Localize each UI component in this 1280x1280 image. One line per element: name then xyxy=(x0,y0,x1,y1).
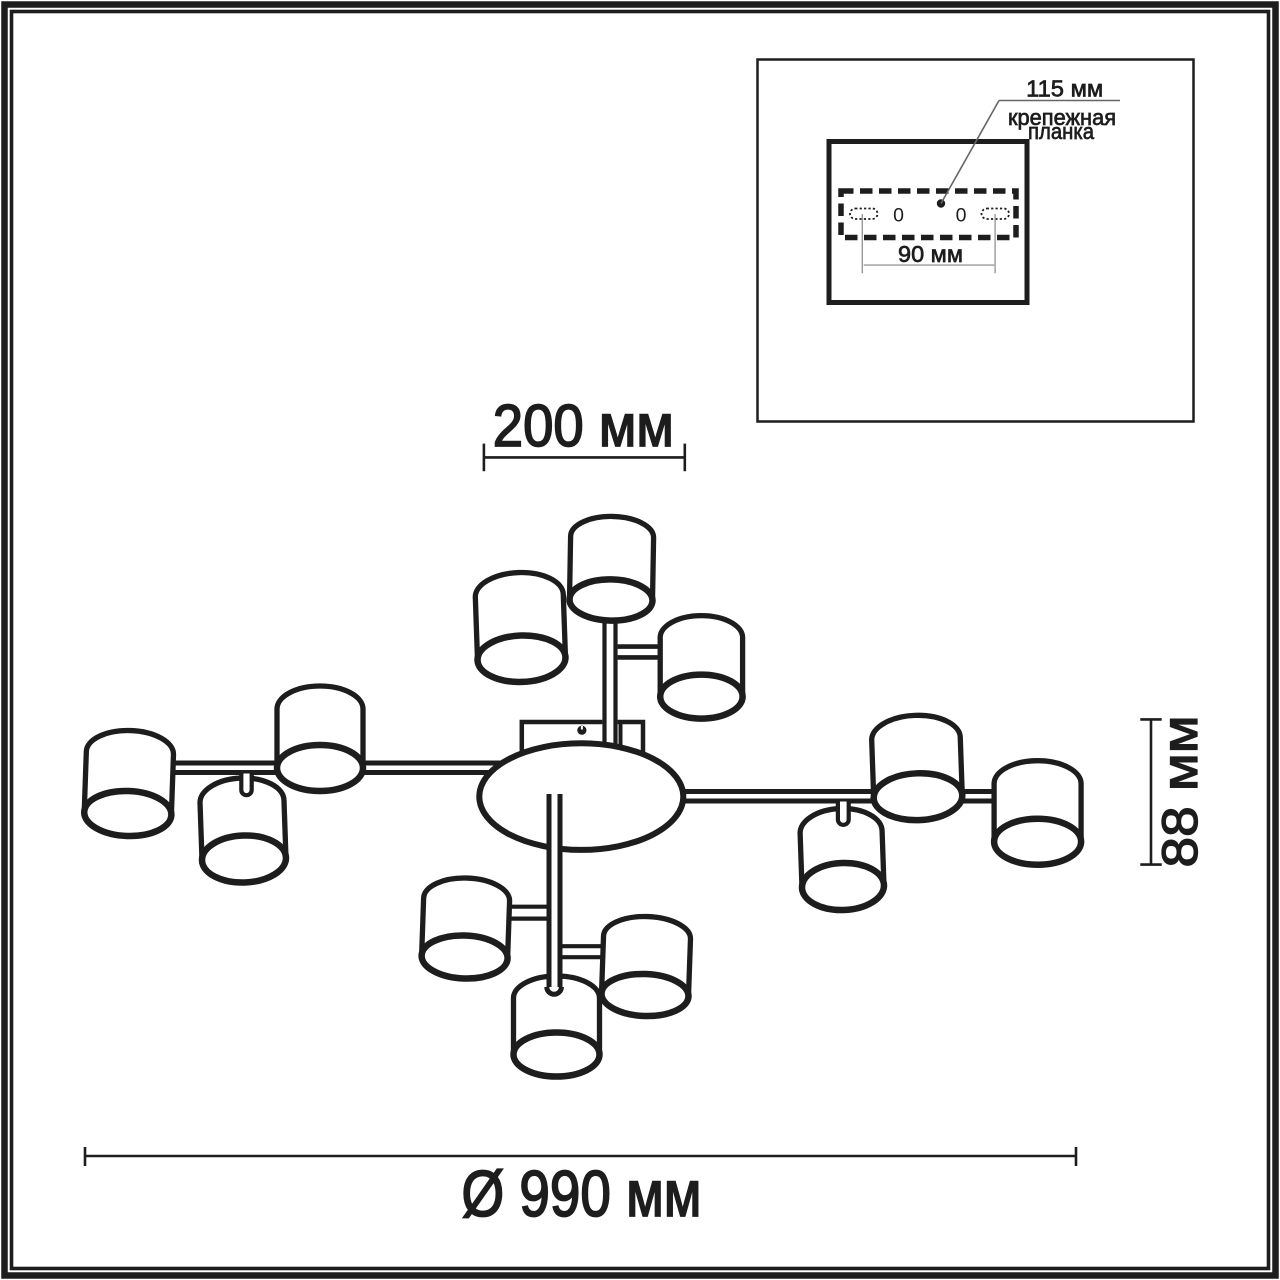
svg-text:90 мм: 90 мм xyxy=(898,241,963,267)
svg-text:планка: планка xyxy=(1028,119,1095,144)
svg-text:0: 0 xyxy=(956,205,967,227)
svg-text:88 мм: 88 мм xyxy=(1152,716,1208,868)
svg-text:0: 0 xyxy=(893,205,904,227)
svg-text:Ø 990 мм: Ø 990 мм xyxy=(462,1158,702,1230)
svg-text:115 мм: 115 мм xyxy=(1026,76,1103,102)
svg-text:200 мм: 200 мм xyxy=(493,393,674,459)
